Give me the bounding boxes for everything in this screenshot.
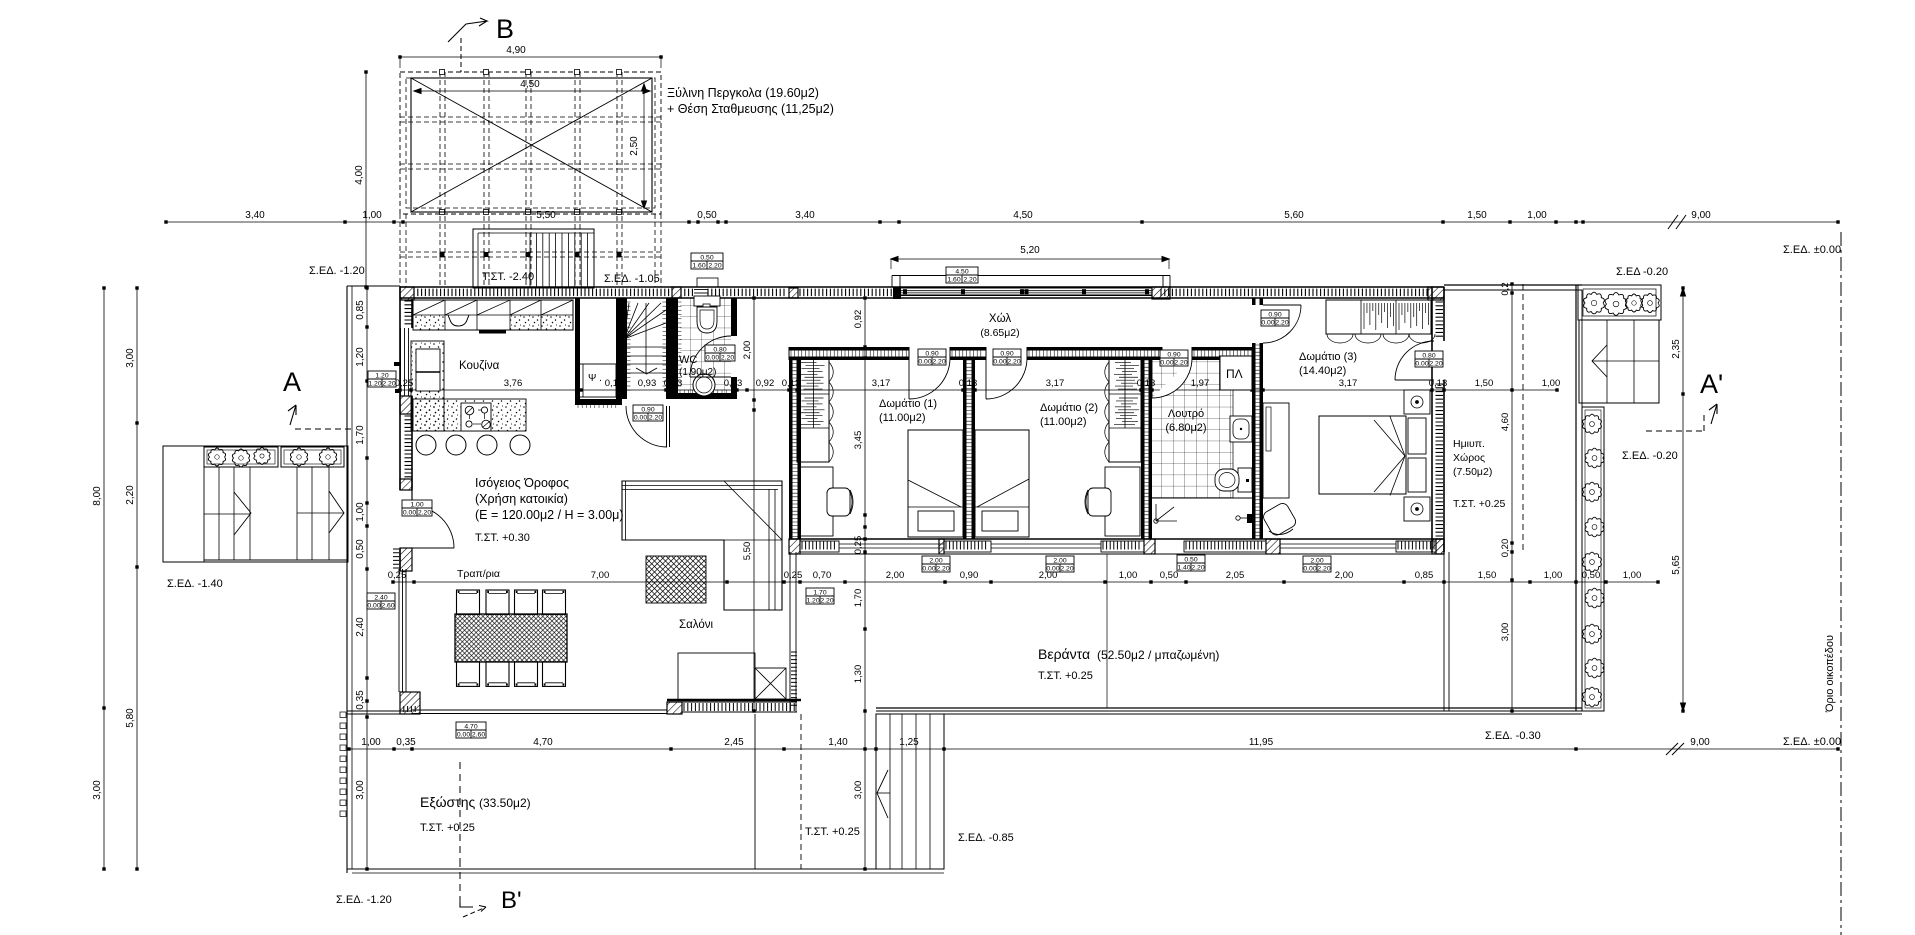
svg-text:1,40: 1,40 [828,737,848,748]
svg-text:4,70: 4,70 [533,737,553,748]
svg-text:0,25: 0,25 [395,378,414,389]
svg-text:2,05: 2,05 [1226,570,1245,581]
svg-text:1.60: 1.60 [692,262,705,269]
svg-text:4.50: 4.50 [955,268,968,275]
svg-text:1,30: 1,30 [853,665,864,684]
svg-text:(11.00μ2): (11.00μ2) [1040,416,1087,428]
svg-text:0.00: 0.00 [403,509,416,516]
svg-text:Σ.ΕΔ. ±0.00: Σ.ΕΔ. ±0.00 [1783,244,1841,256]
svg-text:Δωμάτιο (3): Δωμάτιο (3) [1299,351,1357,363]
svg-text:1.20: 1.20 [375,372,388,379]
svg-text:0.50: 0.50 [700,254,713,261]
svg-text:2.00: 2.00 [1310,557,1323,564]
svg-text:1,00: 1,00 [362,210,382,221]
svg-text:1.40: 1.40 [1177,564,1190,571]
svg-text:2.20: 2.20 [708,262,721,269]
svg-text:2.60: 2.60 [472,731,485,738]
svg-text:Δωμάτιο (2): Δωμάτιο (2) [1040,402,1098,414]
svg-text:Τ.ΣΤ. +0.25: Τ.ΣΤ. +0.25 [805,826,860,838]
svg-text:(11.00μ2): (11.00μ2) [879,412,926,424]
svg-text:ΠΛ: ΠΛ [1226,367,1243,381]
svg-text:1,20: 1,20 [355,347,366,367]
svg-text:1.60: 1.60 [947,276,960,283]
svg-text:5,80: 5,80 [125,708,136,728]
svg-text:1,50: 1,50 [1467,210,1487,221]
svg-text:0,70: 0,70 [813,570,832,581]
svg-text:(8.65μ2): (8.65μ2) [980,327,1019,339]
svg-text:Σ.ΕΔ. -1.20: Σ.ΕΔ. -1.20 [309,265,365,277]
svg-text:(7.50μ2): (7.50μ2) [1453,466,1492,478]
svg-text:0.80: 0.80 [713,346,726,353]
svg-text:2.20: 2.20 [963,276,976,283]
svg-text:2,40: 2,40 [355,617,366,637]
svg-text:Δωμάτιο (1): Δωμάτιο (1) [879,398,937,410]
svg-text:0.50: 0.50 [1184,556,1197,563]
svg-text:Σ.ΕΔ. -1.40: Σ.ΕΔ. -1.40 [167,578,223,590]
svg-text:A': A' [1700,369,1723,399]
svg-text:2,20: 2,20 [125,485,136,505]
svg-text:Βεράντα: Βεράντα [1038,646,1090,662]
svg-text:2.20: 2.20 [936,565,949,572]
svg-text:2.20: 2.20 [1007,358,1020,365]
svg-text:4,50: 4,50 [1013,210,1033,221]
svg-text:0,93: 0,93 [638,378,657,389]
svg-text:4,60: 4,60 [1500,413,1511,432]
svg-text:Σ.ΕΔ. ±0.00: Σ.ΕΔ. ±0.00 [1783,736,1841,748]
svg-text:2.20: 2.20 [1317,565,1330,572]
svg-text:Χώλ: Χώλ [989,313,1011,325]
svg-text:0,85: 0,85 [1415,570,1434,581]
svg-text:Λουτρό: Λουτρό [1168,408,1204,420]
svg-text:3,00: 3,00 [1500,623,1511,642]
svg-text:11,95: 11,95 [1249,737,1274,748]
svg-text:1,00: 1,00 [1527,210,1547,221]
svg-text:Όριο οικοπέδου: Όριο οικοπέδου [1824,635,1836,713]
svg-text:4,90: 4,90 [506,45,526,56]
svg-text:0,85: 0,85 [355,300,366,320]
svg-text:Ημιυπ.: Ημιυπ. [1453,438,1485,450]
svg-text:1,50: 1,50 [1475,378,1494,389]
svg-text:2,50: 2,50 [629,136,640,156]
svg-text:1.00: 1.00 [410,501,423,508]
svg-text:0.00: 0.00 [457,731,470,738]
svg-text:Τ.ΣΤ. +0.25: Τ.ΣΤ. +0.25 [1038,670,1093,682]
svg-text:2,45: 2,45 [724,737,744,748]
svg-text:Τ.ΣΤ. +0.25: Τ.ΣΤ. +0.25 [420,822,475,834]
svg-text:3,00: 3,00 [92,780,103,800]
svg-text:0,92: 0,92 [756,378,775,389]
svg-text:1,00: 1,00 [1623,570,1642,581]
svg-text:0.00: 0.00 [922,565,935,572]
svg-text:3,40: 3,40 [245,210,265,221]
svg-text:B': B' [501,887,522,914]
svg-text:5,60: 5,60 [1284,210,1304,221]
svg-text:2.20: 2.20 [1429,360,1442,367]
svg-text:2.40: 2.40 [374,594,387,601]
svg-text:Σ.ΕΔ. -1.05: Σ.ΕΔ. -1.05 [604,273,660,285]
svg-text:5,50: 5,50 [536,210,556,221]
svg-text:1.20: 1.20 [368,380,381,387]
svg-text:0.90: 0.90 [1167,351,1180,358]
svg-text:3,17: 3,17 [1339,378,1358,389]
svg-text:2.20: 2.20 [932,358,945,365]
svg-text:0,2: 0,2 [1500,282,1511,295]
svg-text:2.00: 2.00 [929,557,942,564]
svg-text:A: A [283,367,301,397]
svg-text:0.00: 0.00 [1160,359,1173,366]
svg-text:Σ.ΕΔ. -0.30: Σ.ΕΔ. -0.30 [1485,730,1541,742]
svg-text:(52.50μ2 / μπαζωμένη): (52.50μ2 / μπαζωμένη) [1097,648,1219,662]
svg-text:0,35: 0,35 [355,690,366,710]
svg-text:4,00: 4,00 [354,165,365,185]
svg-text:(14.40μ2): (14.40μ2) [1299,365,1346,377]
svg-text:0.00: 0.00 [1303,565,1316,572]
svg-text:4.70: 4.70 [464,723,477,730]
svg-text:0,50: 0,50 [355,539,366,559]
svg-text:3,17: 3,17 [1046,378,1065,389]
svg-text:1,50: 1,50 [1478,570,1497,581]
svg-text:Κουζίνα: Κουζίνα [459,360,500,372]
svg-text:7,00: 7,00 [591,570,610,581]
svg-text:2.20: 2.20 [1060,565,1073,572]
svg-text:0.00: 0.00 [1415,360,1428,367]
svg-text:2,00: 2,00 [742,341,753,360]
svg-text:0.00: 0.00 [706,354,719,361]
svg-text:0,90: 0,90 [960,570,979,581]
svg-text:2,00: 2,00 [886,570,905,581]
svg-text:2.20: 2.20 [382,380,395,387]
svg-text:Σ.ΕΔ. -1.20: Σ.ΕΔ. -1.20 [336,894,392,906]
svg-text:9,00: 9,00 [1691,210,1711,221]
svg-text:2.00: 2.00 [1053,557,1066,564]
svg-text:3,00: 3,00 [125,348,136,368]
svg-text:2.20: 2.20 [721,354,734,361]
svg-text:1,00: 1,00 [1542,378,1561,389]
svg-text:0,20: 0,20 [1500,539,1511,558]
svg-text:0.00: 0.00 [993,358,1006,365]
svg-text:2.20: 2.20 [1275,319,1288,326]
svg-text:2.20: 2.20 [820,597,833,604]
svg-text:Εξώστης: Εξώστης [420,794,475,810]
svg-text:1.70: 1.70 [813,589,826,596]
svg-text:(Ε = 120.00μ2 / Η = 3.00μ): (Ε = 120.00μ2 / Η = 3.00μ) [475,508,624,522]
svg-text:8,00: 8,00 [92,486,103,506]
svg-text:2.20: 2.20 [649,414,662,421]
svg-text:3,17: 3,17 [872,378,891,389]
svg-text:WC: WC [679,354,697,366]
svg-text:0,35: 0,35 [396,737,416,748]
svg-text:Ξύλινη Περγκολα (19.60μ2): Ξύλινη Περγκολα (19.60μ2) [667,86,819,100]
svg-text:2.20: 2.20 [1174,359,1187,366]
svg-text:0.00: 0.00 [1261,319,1274,326]
svg-text:2,00: 2,00 [1335,570,1354,581]
svg-text:4,50: 4,50 [520,79,540,90]
svg-text:9,00: 9,00 [1690,737,1710,748]
svg-text:3,00: 3,00 [355,780,366,800]
svg-text:0.90: 0.90 [1268,311,1281,318]
svg-text:2.60: 2.60 [381,602,394,609]
svg-text:3,76: 3,76 [504,378,523,389]
svg-text:0,50: 0,50 [697,210,717,221]
svg-text:(1.90μ2): (1.90μ2) [679,367,716,378]
svg-text:0.00: 0.00 [634,414,647,421]
svg-text:Σ.ΕΔ. -0.20: Σ.ΕΔ. -0.20 [1622,450,1678,462]
svg-text:+ Θέση Σταθμευσης (11,25μ2): + Θέση Σταθμευσης (11,25μ2) [667,102,834,116]
svg-text:1,00: 1,00 [1119,570,1138,581]
svg-text:0.00: 0.00 [367,602,380,609]
svg-text:1,70: 1,70 [853,589,864,608]
svg-text:0.90: 0.90 [641,406,654,413]
svg-text:5,50: 5,50 [742,542,753,561]
svg-text:Τ.ΣΤ. -2.40: Τ.ΣΤ. -2.40 [482,271,534,283]
svg-text:Τ.ΣΤ. +0.25: Τ.ΣΤ. +0.25 [1453,498,1505,510]
svg-text:5,20: 5,20 [1020,245,1040,256]
svg-text:1,70: 1,70 [355,425,366,445]
svg-text:Τ.ΣΤ. +0.30: Τ.ΣΤ. +0.30 [475,532,530,544]
svg-text:2,35: 2,35 [1671,339,1682,359]
svg-text:1,00: 1,00 [361,737,381,748]
svg-text:0,92: 0,92 [853,310,864,329]
svg-text:(Χρήση κατοικία): (Χρήση κατοικία) [475,492,568,506]
svg-text:0.00: 0.00 [918,358,931,365]
svg-text:5,65: 5,65 [1671,555,1682,575]
svg-text:Ψ .: Ψ . [588,373,602,384]
svg-text:Χώρος: Χώρος [1453,452,1485,464]
svg-text:3,40: 3,40 [795,210,815,221]
svg-text:0.90: 0.90 [1000,350,1013,357]
svg-text:Σαλόνι: Σαλόνι [679,619,713,631]
svg-text:0.00: 0.00 [1046,565,1059,572]
svg-text:B: B [496,14,514,44]
svg-text:Σ.ΕΔ -0.20: Σ.ΕΔ -0.20 [1616,266,1668,278]
svg-text:1,00: 1,00 [355,502,366,522]
svg-text:(33.50μ2): (33.50μ2) [479,796,531,810]
svg-text:0.80: 0.80 [1422,352,1435,359]
svg-text:Ισόγειος Όροφος: Ισόγειος Όροφος [475,476,569,490]
svg-text:2.20: 2.20 [1191,564,1204,571]
svg-text:0,25: 0,25 [784,570,803,581]
svg-text:2.20: 2.20 [418,509,431,516]
svg-text:Σ.ΕΔ. -0.85: Σ.ΕΔ. -0.85 [958,832,1014,844]
svg-text:3,00: 3,00 [853,781,864,800]
svg-text:0.90: 0.90 [925,350,938,357]
svg-text:0,25: 0,25 [388,570,407,581]
svg-text:1,00: 1,00 [1544,570,1563,581]
svg-text:(6.80μ2): (6.80μ2) [1165,422,1206,434]
svg-text:0,50: 0,50 [1160,570,1179,581]
svg-text:3,45: 3,45 [853,431,864,450]
svg-text:Τραπ/ρια: Τραπ/ρια [457,568,500,580]
svg-text:1.20: 1.20 [806,597,819,604]
